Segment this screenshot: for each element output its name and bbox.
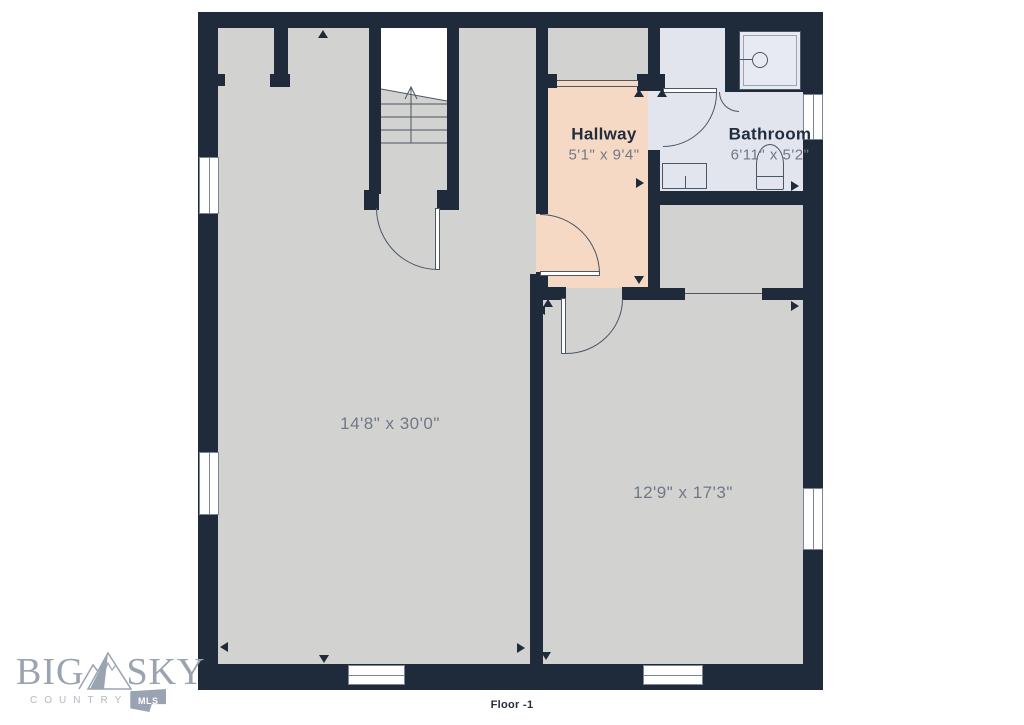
room-name: Bathroom [729, 125, 812, 145]
mls-badge: MLS [130, 689, 166, 712]
dimension-arrow [537, 305, 545, 315]
wall-bath-bottom [648, 191, 823, 205]
wall-bottom [198, 664, 823, 690]
logo-tagline: COUNTRY [30, 695, 128, 706]
window-left-lower [199, 452, 219, 515]
dimension-arrow [636, 178, 644, 188]
window-right-lower [803, 488, 823, 550]
room-dimensions: 6'11" x 5'2" [729, 147, 812, 164]
nook-opening [557, 80, 638, 87]
wall-bath-left [648, 150, 660, 194]
brand-logo: BIG SKY COUNTRY MLS [16, 647, 205, 712]
wall-nook-right [648, 28, 660, 77]
room-dimensions: 14'8" x 30'0" [340, 414, 440, 434]
wall-notch-left [218, 74, 225, 86]
closet-room-floor [660, 205, 803, 288]
room-label-hallway: Hallway 5'1" x 9'4" [568, 125, 639, 164]
top-nook-floor [548, 28, 648, 80]
wall-closet-bottom-right [762, 288, 823, 300]
window-bottom-left [348, 665, 405, 685]
staircase [381, 28, 447, 210]
dimension-arrow [791, 181, 799, 191]
bathroom-door-gap [648, 91, 660, 150]
wall-stair-left-foot [364, 190, 379, 210]
dimension-arrow [220, 642, 228, 652]
wall-stub-foot [270, 74, 290, 87]
room-label-bathroom: Bathroom 6'11" x 5'2" [729, 125, 812, 164]
dimension-arrow [634, 276, 644, 284]
dimension-arrow [517, 643, 525, 653]
floor-plan-page: Hallway 5'1" x 9'4" Bathroom 6'11" x 5'2… [0, 0, 1024, 725]
dimension-arrow [319, 655, 329, 663]
wall-stair-right [447, 28, 459, 194]
sink [662, 163, 707, 189]
wall-stair-right-foot [437, 190, 459, 210]
wall-top [198, 12, 823, 28]
wall-hallway-right [648, 194, 660, 300]
logo-word-big: BIG [16, 653, 84, 691]
shower [739, 31, 801, 90]
window-bottom-right [643, 665, 703, 685]
wall-room-divider [530, 274, 543, 665]
wall-stub-top-left [274, 28, 288, 76]
dimension-arrow [657, 89, 667, 97]
closet-opening [685, 288, 762, 300]
dimension-arrow [791, 301, 799, 311]
wall-left [198, 12, 218, 690]
logo-word-sky: SKY [126, 653, 205, 691]
dimension-arrow [634, 89, 644, 97]
wall-stair-left [369, 28, 381, 194]
room-name: Hallway [568, 125, 639, 145]
dimension-arrow [537, 178, 545, 188]
window-left-upper [199, 157, 219, 214]
room-dimensions: 5'1" x 9'4" [568, 147, 639, 164]
closet-opening-line [685, 293, 762, 294]
wall-closet-bottom-left [658, 288, 685, 300]
room-label-large-room: 14'8" x 30'0" [340, 412, 440, 434]
wall-hallway-left-jamb [536, 74, 557, 88]
dimension-arrow [318, 30, 328, 38]
brand-wordmark: BIG SKY [16, 647, 205, 691]
dimension-arrow [541, 652, 551, 660]
room-label-right-room: 12'9" x 17'3" [633, 481, 733, 503]
room-dimensions: 12'9" x 17'3" [633, 483, 733, 503]
